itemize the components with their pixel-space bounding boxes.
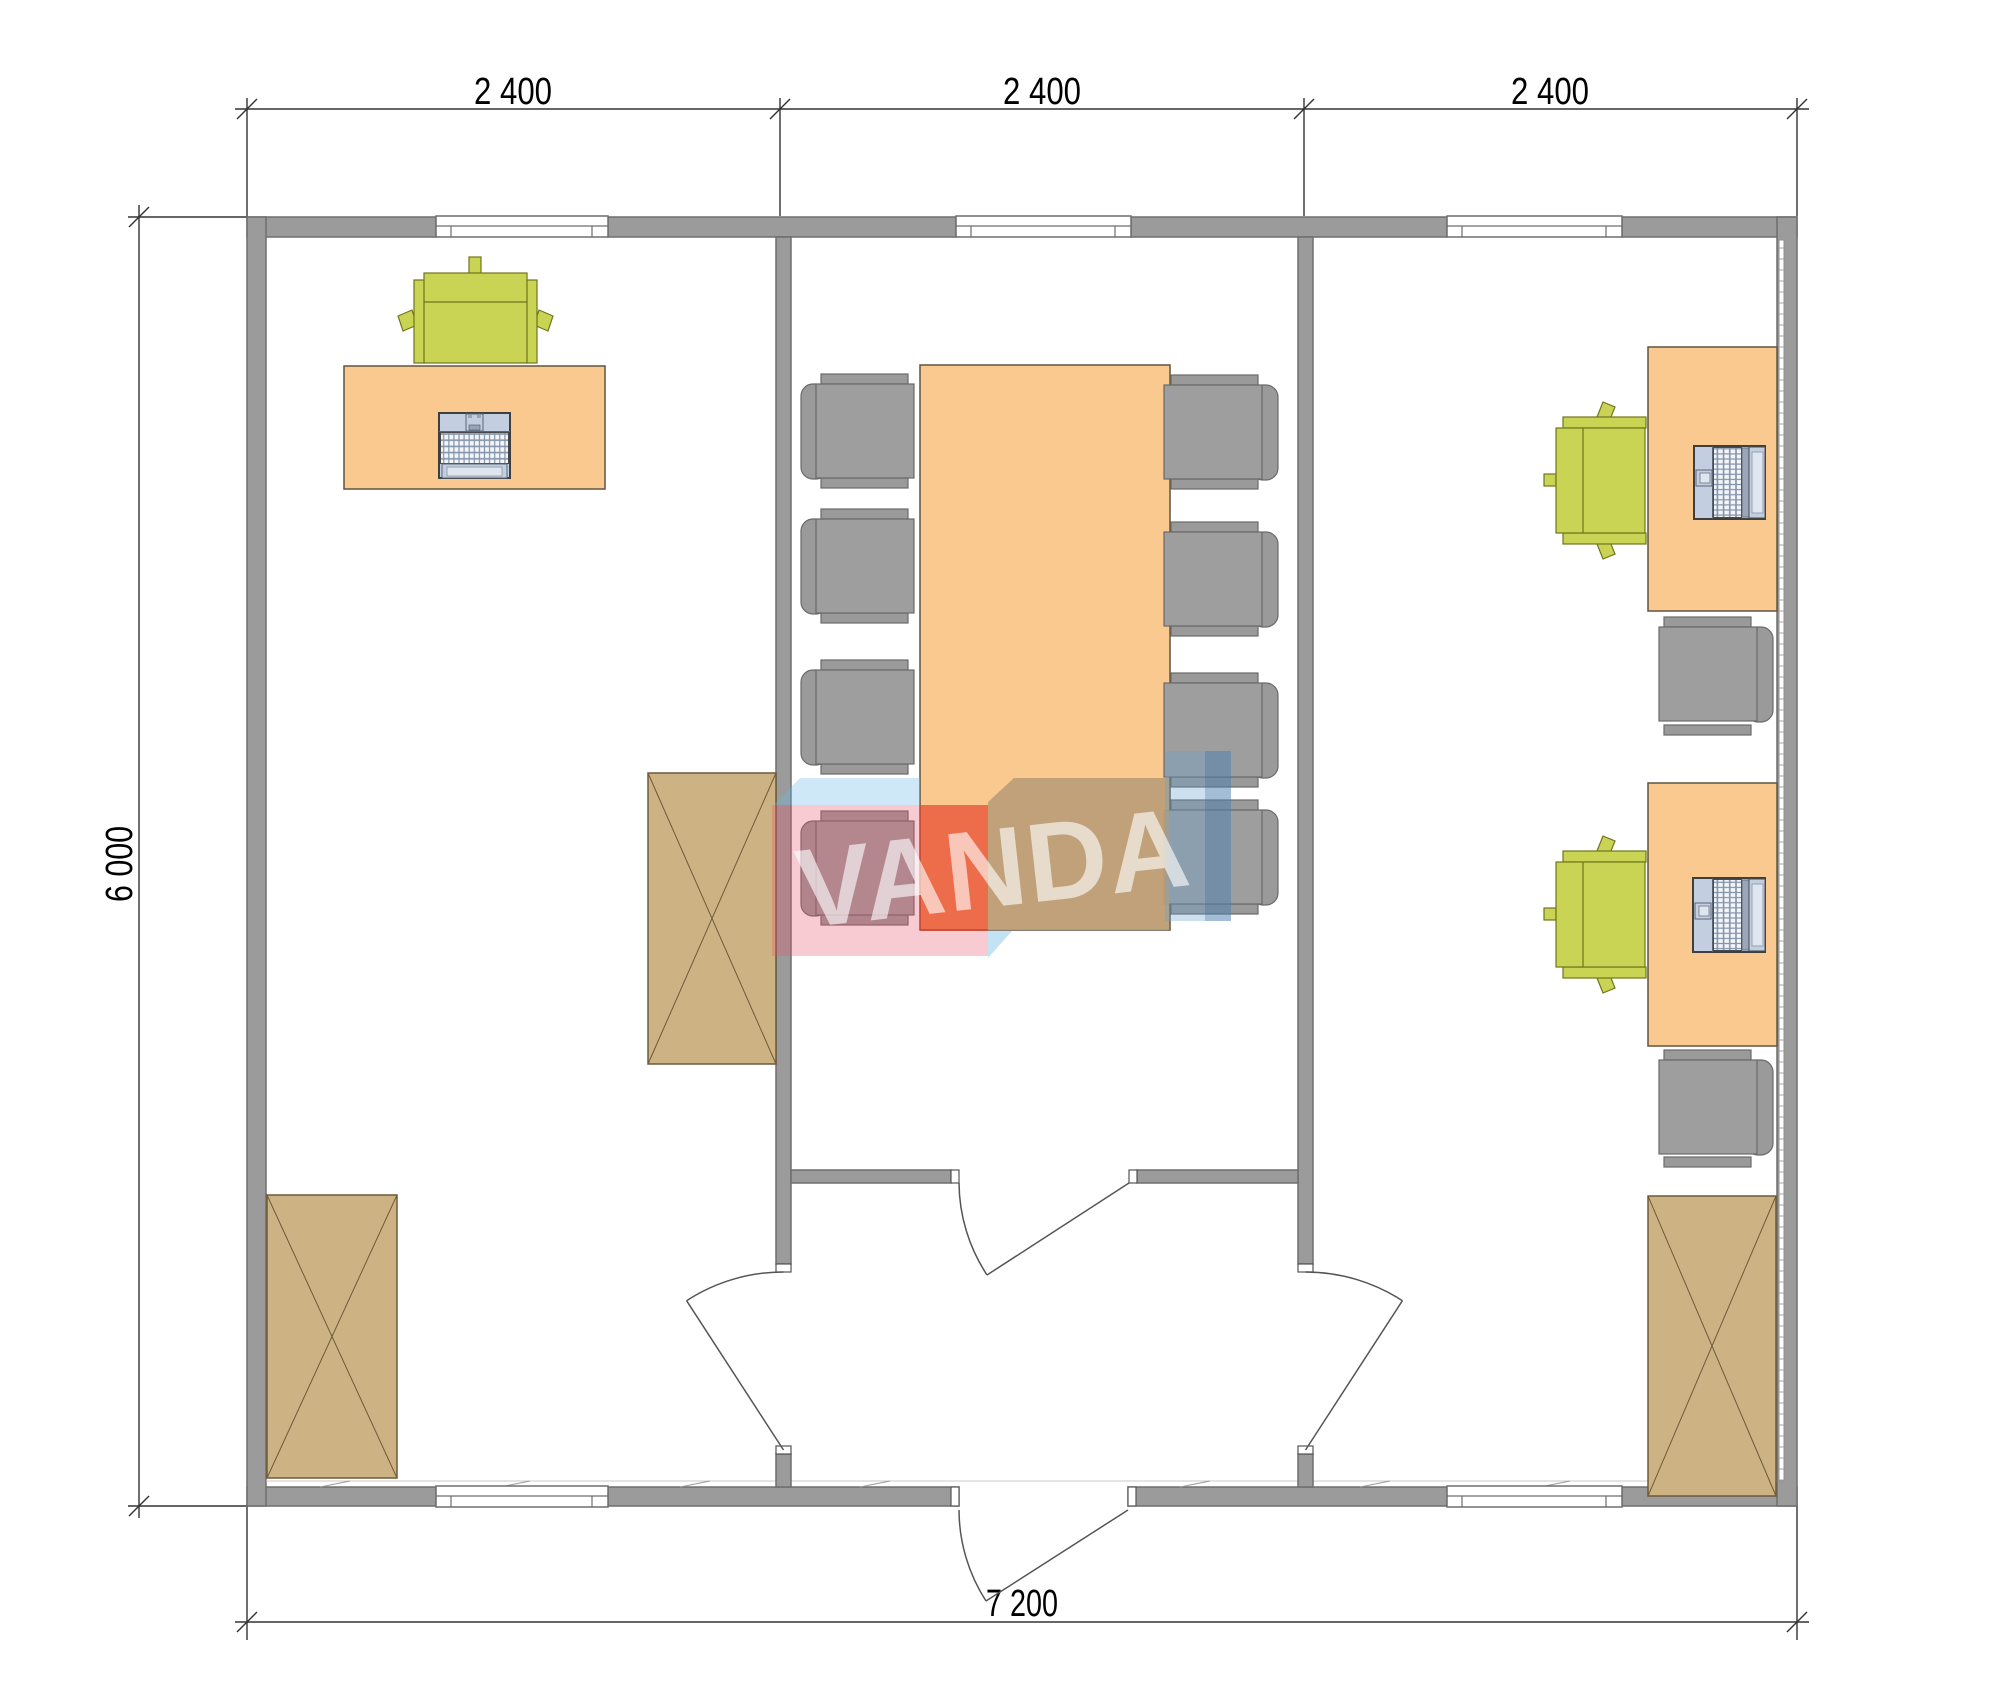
svg-text:6 000: 6 000 — [99, 826, 141, 902]
svg-text:2 400: 2 400 — [1003, 71, 1081, 113]
svg-text:2 400: 2 400 — [474, 71, 552, 113]
svg-text:7 200: 7 200 — [986, 1583, 1058, 1625]
svg-text:2 400: 2 400 — [1511, 71, 1589, 113]
